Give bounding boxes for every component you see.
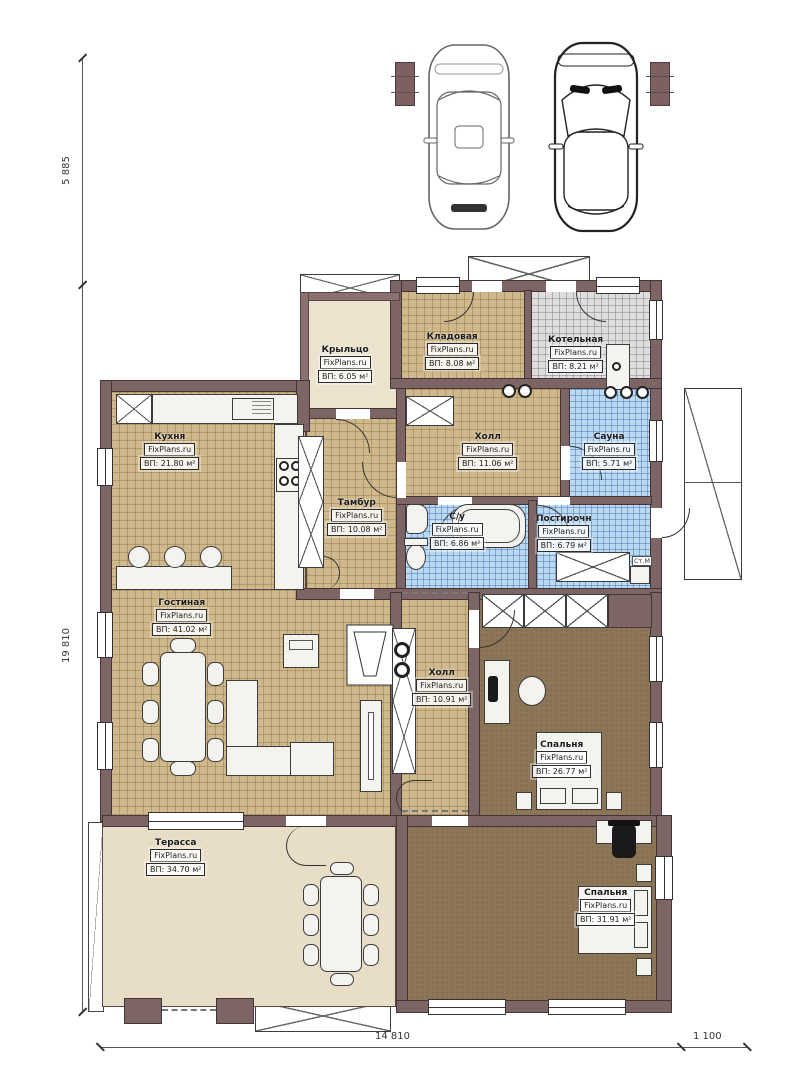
dining-chair [142, 662, 159, 686]
desk-monitor [488, 676, 498, 702]
room-label-bathroom: С/у FixPlans.ru ВП: 6.86 м² [430, 512, 484, 550]
room-area: ВП: 34.70 м² [146, 863, 205, 876]
terrace-edge-dashed [162, 1009, 216, 1011]
wall-hall-sauna [560, 388, 570, 502]
room-label-hall-upper: Холл FixPlans.ru ВП: 11.06 м² [458, 432, 517, 470]
door-gap-bedroom1 [469, 610, 479, 648]
stove-burner [279, 461, 289, 471]
room-label-porch: Крыльцо FixPlans.ru ВП: 6.05 м² [318, 345, 372, 383]
watermark: FixPlans.ru [416, 679, 467, 692]
dim-line-left [82, 58, 83, 1012]
window-boiler [649, 300, 663, 340]
stove-burner [279, 476, 289, 486]
bar-stool [200, 546, 222, 568]
room-area: ВП: 21.80 м² [140, 457, 199, 470]
room-area: ВП: 10.08 м² [327, 523, 386, 536]
kitchen-bar [116, 566, 232, 590]
dining-chair [207, 662, 224, 686]
watermark: FixPlans.ru [584, 443, 635, 456]
window-bedroom1-1 [649, 636, 663, 682]
room-label-laundry: Постирочн FixPlans.ru ВП: 6.79 м² [536, 514, 592, 552]
nightstand [606, 792, 622, 810]
terrace-chair [363, 944, 379, 966]
window-bedroom2-2 [548, 999, 626, 1015]
laundry-cabinet [556, 552, 630, 582]
bar-stool [128, 546, 150, 568]
bedroom2-basin-top [608, 820, 640, 826]
wardrobe-box [524, 594, 566, 628]
wall-right-lower [656, 815, 672, 1007]
boiler-pipe [604, 386, 617, 399]
armchair [290, 742, 334, 776]
dining-chair [142, 700, 159, 724]
window-bedroom2-right [655, 856, 673, 900]
hall-sideboard-detail [368, 712, 374, 780]
watermark: FixPlans.ru [150, 849, 201, 862]
terrace-chair [363, 914, 379, 936]
hall-fixture [502, 384, 516, 398]
room-area: ВП: 8.08 м² [425, 357, 479, 370]
watermark: FixPlans.ru [536, 751, 587, 764]
room-area: ВП: 8.21 м² [548, 360, 602, 373]
window-living-1 [97, 612, 113, 658]
terrace-column-1 [124, 998, 162, 1024]
wall-storage-boiler [524, 290, 532, 382]
door-gap-storage [472, 281, 502, 292]
parking-post-left [395, 62, 415, 106]
window-kitchen [97, 448, 113, 486]
window-bedroom2-1 [428, 999, 506, 1015]
parking-post-right [650, 62, 670, 106]
hall-opening-top [402, 592, 468, 594]
dim-label-5885: 5 885 [61, 156, 72, 185]
kitchen-counter-top [152, 394, 298, 424]
bedroom2-basin [612, 824, 636, 858]
bed-2-pillow [634, 890, 648, 916]
bed-1-pillow [572, 788, 598, 804]
watermark: FixPlans.ru [156, 609, 207, 622]
room-label-living: Гостиная FixPlans.ru ВП: 41.02 м² [152, 598, 211, 636]
wall-bedroom1-top [608, 594, 652, 628]
room-area: ВП: 6.05 м² [318, 370, 372, 383]
terrace-chair [330, 862, 354, 875]
washer-label: Ст.М [632, 556, 652, 566]
hall-opening-bottom [402, 810, 468, 812]
terrace-chair [330, 973, 354, 986]
room-label-vestibule: Тамбур FixPlans.ru ВП: 10.08 м² [327, 498, 386, 536]
kitchen-sink-grate [252, 401, 271, 417]
terrace-chair [363, 884, 379, 906]
room-label-hall-main: Холл FixPlans.ru ВП: 10.91 м² [412, 668, 471, 706]
terrace-chair [303, 914, 319, 936]
hall-fixture [518, 384, 532, 398]
wall-hall-bath [396, 496, 652, 505]
dining-chair [170, 761, 196, 776]
door-gap-sauna [561, 446, 570, 480]
room-label-bedroom2: Спальня FixPlans.ru ВП: 31.91 м² [576, 888, 635, 926]
floor-plan: 5 885 19 810 14 810 1 100 [0, 0, 792, 1080]
vent-shaft [298, 436, 324, 568]
room-label-terrace: Терасса FixPlans.ru ВП: 34.70 м² [146, 838, 205, 876]
room-label-bedroom1: Спальня FixPlans.ru ВП: 26.77 м² [532, 740, 591, 778]
bathroom-sink [406, 504, 428, 534]
wall-terrace-bedroom2 [396, 815, 408, 1007]
watermark: FixPlans.ru [550, 346, 601, 359]
wall-porch-top [300, 292, 400, 301]
room-area: ВП: 6.79 м² [537, 539, 591, 552]
door-gap-boiler [546, 281, 576, 292]
toilet-tank [404, 538, 428, 546]
door-gap-vestibule-hall [397, 462, 406, 498]
dim-label-14810: 14 810 [375, 1031, 410, 1042]
door-gap-laundry [538, 497, 570, 505]
room-area: ВП: 11.06 м² [458, 457, 517, 470]
side-canopy [684, 388, 742, 580]
room-area: ВП: 31.91 м² [576, 913, 635, 926]
room-area: ВП: 10.91 м² [412, 693, 471, 706]
terrace-chair [303, 944, 319, 966]
door-gap-bedroom2 [432, 816, 468, 826]
fireplace [346, 624, 394, 686]
dining-chair [170, 638, 196, 653]
dining-chair [207, 700, 224, 724]
boiler-pipe [636, 386, 649, 399]
door-gap-vest-living [340, 589, 374, 599]
boiler-dial [612, 362, 621, 371]
window-living-terrace [148, 812, 244, 830]
hall-cabinet [406, 396, 454, 426]
dining-chair [207, 738, 224, 762]
bar-stool [164, 546, 186, 568]
watermark: FixPlans.ru [320, 356, 371, 369]
room-label-storage: Кладовая FixPlans.ru ВП: 8.08 м² [425, 332, 479, 370]
terrace-table [320, 876, 362, 972]
watermark: FixPlans.ru [427, 343, 478, 356]
watermark: FixPlans.ru [144, 443, 195, 456]
nightstand [516, 792, 532, 810]
car-2-icon [548, 40, 644, 234]
terrace-column-2 [216, 998, 254, 1024]
dining-table [160, 652, 206, 762]
flue-ring [394, 642, 410, 658]
room-area: ВП: 5.71 м² [582, 457, 636, 470]
window-sauna [649, 420, 663, 462]
flue-ring [394, 662, 410, 678]
nightstand [636, 958, 652, 976]
washing-machine [630, 566, 650, 584]
watermark: FixPlans.ru [331, 509, 382, 522]
room-area: ВП: 41.02 м² [152, 623, 211, 636]
bed-1-pillow [540, 788, 566, 804]
room-area: ВП: 26.77 м² [532, 765, 591, 778]
room-label-kitchen: Кухня FixPlans.ru ВП: 21.80 м² [140, 432, 199, 470]
watermark: FixPlans.ru [538, 525, 589, 538]
door-gap-terrace [286, 816, 326, 826]
door-gap-laundry-out [651, 508, 662, 538]
dim-line-bottom [100, 1047, 748, 1048]
window-living-2 [97, 722, 113, 770]
wall-kitchen-top [100, 380, 308, 392]
kitchen-vent-box [116, 394, 152, 424]
desk-chair [518, 676, 546, 706]
door-gap-porch [336, 409, 370, 419]
bed-2-pillow [634, 922, 648, 948]
room-area: ВП: 6.86 м² [430, 537, 484, 550]
watermark: FixPlans.ru [462, 443, 513, 456]
side-table-detail [289, 640, 313, 650]
car-1-icon [423, 42, 515, 232]
watermark: FixPlans.ru [432, 523, 483, 536]
watermark: FixPlans.ru [580, 899, 631, 912]
room-label-sauna: Сауна FixPlans.ru ВП: 5.71 м² [582, 432, 636, 470]
side-canopy-divider [684, 482, 742, 483]
dining-chair [142, 738, 159, 762]
door-arc-terrace [286, 826, 326, 866]
dim-label-1100: 1 100 [693, 1031, 722, 1042]
nightstand [636, 864, 652, 882]
toilet [406, 544, 426, 570]
terrace-chair [303, 884, 319, 906]
dim-label-19810: 19 810 [61, 628, 72, 663]
wardrobe-box [566, 594, 608, 628]
room-label-boiler: Котельная FixPlans.ru ВП: 8.21 м² [548, 335, 603, 373]
boiler-pipe [620, 386, 633, 399]
window-bedroom1-2 [649, 722, 663, 768]
